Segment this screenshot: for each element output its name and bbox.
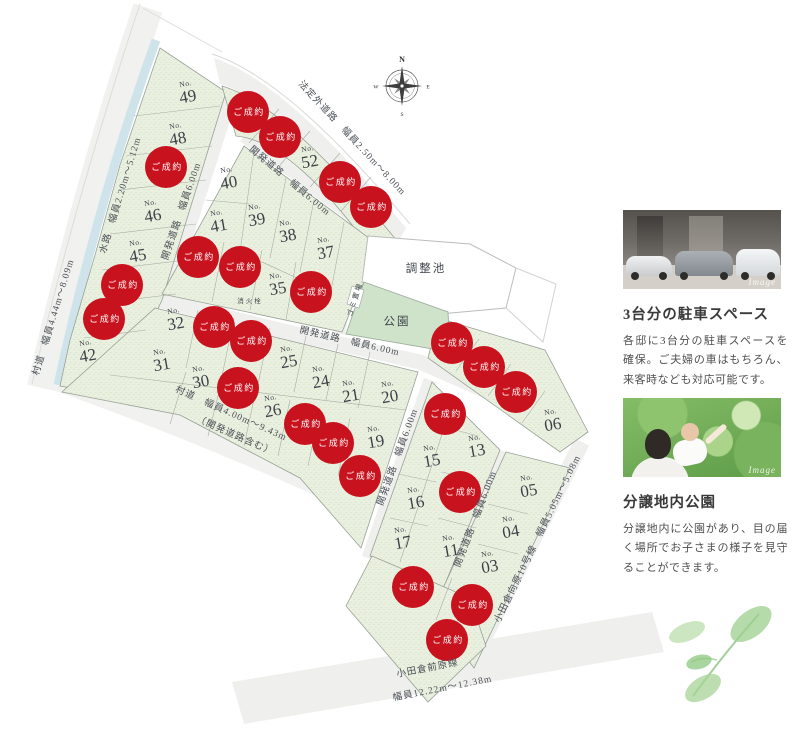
child-head [681,423,699,441]
compass-east-label: E [426,85,430,91]
sold-marker: ご成約 [426,619,468,661]
svg-text:35: 35 [268,278,288,300]
sold-marker: ご成約 [339,455,381,497]
park-photo: Image [623,398,781,477]
feature-section-parking: Image 3台分の駐車スペース 各邸に3台分の駐車スペースを確保。ご夫婦の車は… [623,210,788,390]
svg-text:ご成約: ご成約 [445,486,477,497]
svg-text:ご成約: ご成約 [183,251,215,262]
svg-text:ご成約: ご成約 [199,321,231,332]
sold-marker: ご成約 [177,236,219,278]
svg-text:ご成約: ご成約 [457,599,489,610]
svg-text:16: 16 [406,492,426,514]
child-arm [704,423,727,445]
svg-text:ご成約: ご成約 [236,335,268,346]
sold-marker: ご成約 [230,320,272,362]
svg-text:32: 32 [166,313,186,335]
page: N E S W No.49No.48No.46No.45No.42No.52No… [0,0,800,734]
svg-text:38: 38 [278,225,298,247]
svg-text:ご成約: ご成約 [223,382,255,393]
svg-text:ご成約: ご成約 [469,361,501,372]
compass-south-label: S [400,112,403,118]
sold-marker: ご成約 [424,393,466,435]
sold-marker: ご成約 [217,367,259,409]
feature-body: 分譲地内に公園があり、目の届く場所でお子さまの様子を見守ることができます。 [623,520,788,578]
svg-text:26: 26 [263,400,283,422]
svg-text:ご成約: ご成約 [325,176,357,187]
svg-text:ご成約: ご成約 [432,634,464,645]
svg-text:52: 52 [300,151,320,173]
feature-title: 分譲地内公園 [623,491,788,512]
svg-text:ご成約: ご成約 [233,106,265,117]
svg-text:31: 31 [152,354,172,376]
svg-text:42: 42 [78,345,98,367]
parking-photo: Image [623,210,781,289]
feature-body: 各邸に3台分の駐車スペースを確保。ご夫婦の車はもちろん、来客時なども対応可能です… [623,332,788,390]
svg-text:03: 03 [480,556,500,578]
leaf-decoration [655,598,775,708]
svg-text:ご成約: ご成約 [89,313,121,324]
facility-label: 公園 [384,315,411,328]
compass-west-label: W [373,85,379,91]
svg-text:ご成約: ご成約 [296,286,328,297]
parent-head [645,429,671,459]
sold-marker: ご成約 [312,422,354,464]
svg-text:45: 45 [128,245,148,267]
svg-text:ご成約: ご成約 [265,131,297,142]
sold-marker: ご成約 [495,371,537,413]
sold-marker: ご成約 [83,298,125,340]
svg-text:06: 06 [543,414,563,436]
svg-text:ご成約: ご成約 [318,437,350,448]
svg-text:ご成約: ご成約 [345,470,377,481]
sold-marker: ご成約 [350,186,392,228]
svg-text:ご成約: ご成約 [225,261,257,272]
svg-text:20: 20 [380,386,400,408]
svg-text:46: 46 [143,205,163,227]
svg-text:49: 49 [178,86,198,108]
svg-text:13: 13 [467,440,487,462]
facility-label: 消火栓 [237,296,263,305]
sold-marker: ご成約 [290,271,332,313]
compass-north-label: N [399,55,405,64]
svg-text:15: 15 [422,450,442,472]
svg-text:ご成約: ご成約 [430,408,462,419]
facility-label: 調整池 [406,261,447,275]
sold-marker: ご成約 [193,306,235,348]
car-icon [736,249,780,276]
svg-text:05: 05 [519,480,539,502]
svg-text:ご成約: ご成約 [437,337,469,348]
svg-text:ご成約: ご成約 [151,161,183,172]
image-watermark: Image [749,465,777,475]
feature-section-park: Image 分譲地内公園 分譲地内に公園があり、目の届く場所でお子さまの様子を見… [623,398,788,578]
car-icon [675,251,733,276]
svg-text:21: 21 [341,385,361,407]
svg-text:39: 39 [247,209,267,231]
sold-marker: ご成約 [392,566,434,608]
svg-text:30: 30 [191,371,211,393]
sold-marker: ご成約 [451,584,493,626]
svg-text:48: 48 [168,128,188,150]
image-watermark: Image [749,277,777,287]
svg-text:41: 41 [209,215,229,237]
sold-marker: ご成約 [259,116,301,158]
feature-title: 3台分の駐車スペース [623,303,788,324]
svg-text:25: 25 [279,351,299,373]
car-icon [626,256,672,276]
sold-marker: ご成約 [145,146,187,188]
svg-text:ご成約: ご成約 [356,201,388,212]
svg-text:ご成約: ご成約 [107,279,139,290]
svg-text:ご成約: ご成約 [290,418,322,429]
compass-rose: N E S W [373,55,430,118]
svg-text:ご成約: ご成約 [501,386,533,397]
svg-text:19: 19 [366,431,386,453]
sold-marker: ご成約 [219,246,261,288]
svg-text:40: 40 [219,172,239,194]
svg-text:ご成約: ご成約 [398,581,430,592]
